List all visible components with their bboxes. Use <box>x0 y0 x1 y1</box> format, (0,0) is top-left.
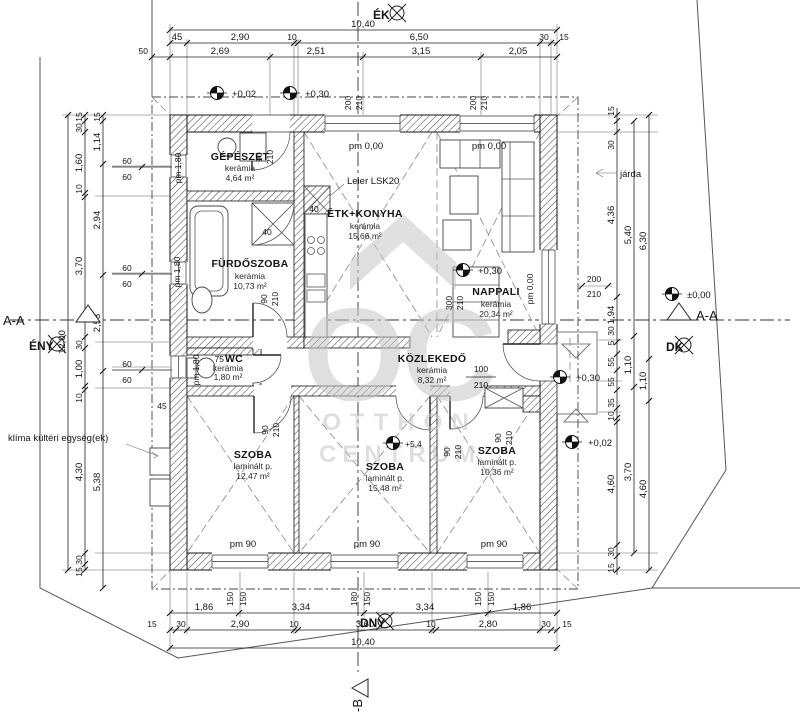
dim-label: 15 <box>74 567 84 577</box>
dim-label: 10,40 <box>351 637 375 648</box>
compass-ne: ÉK <box>373 7 390 22</box>
level-value: +0,30 <box>478 266 502 277</box>
dim-label: 2,05 <box>509 46 528 57</box>
room-area: 15,66 m² <box>348 231 382 241</box>
dim-label: 5,38 <box>92 473 103 492</box>
dim-label: 3,34 <box>292 602 311 613</box>
dim-label: 10 <box>289 619 299 629</box>
window-size-label: 200 <box>587 274 601 284</box>
dim-label: 30 <box>606 140 616 150</box>
room-area: 15,48 m² <box>368 483 402 493</box>
room-name: SZOBA <box>478 445 516 457</box>
dim-label: 3,34 <box>416 602 435 613</box>
dim-label: 2,94 <box>92 211 103 230</box>
dim-label: 6,50 <box>410 32 429 43</box>
room-area: 12,47 m² <box>236 471 270 481</box>
level-value: +0,30 <box>305 89 329 100</box>
section-label-a-right: A-A <box>696 308 718 323</box>
dim-label: 1,86 <box>195 602 214 613</box>
window-size-label: 150 <box>473 592 483 606</box>
chimney-label: Leier LSK20 <box>347 176 399 187</box>
window-size-label: 210 <box>587 289 601 299</box>
dim-label: 2,90 <box>231 619 250 630</box>
dim-label: 3,15 <box>412 46 431 57</box>
room-floor: kerámia <box>235 271 266 281</box>
fixture-size-label: 40 <box>262 227 272 237</box>
bathtub <box>190 206 228 296</box>
window-size-label: 60 <box>122 375 132 385</box>
window-size-label: 60 <box>122 172 132 182</box>
section-triangle-a-left <box>76 305 100 322</box>
section-label-b: -B <box>350 699 365 712</box>
window-size-label: 60 <box>122 263 132 273</box>
sofa-vertical <box>502 142 534 252</box>
armchair <box>443 220 471 250</box>
compass-icon <box>388 4 406 22</box>
dim-label: 10 <box>287 32 297 42</box>
pm-label: pm 90 <box>354 539 380 550</box>
level-marker-icon <box>662 288 682 301</box>
watermark-line1: OTTHON <box>322 409 477 436</box>
dim-label: 45 <box>172 32 183 43</box>
compass-se: DK <box>666 340 684 354</box>
dim-label: 15 <box>562 619 572 629</box>
dim-label: 5,40 <box>623 226 634 245</box>
dim-label: 4,60 <box>606 475 617 494</box>
klima-label: klíma kültéri egység(ek) <box>8 433 108 444</box>
dim-label: 2,69 <box>211 46 230 57</box>
pm-label: pm 1,80 <box>172 256 182 287</box>
dims-left: 15 30 1,60 10 3,70 30 1,00 10 4,30 30 15… <box>57 112 172 591</box>
room-name: GÉPÉSZET <box>211 150 270 163</box>
pm-label: pm 0,00 <box>349 141 383 152</box>
window-size-label: 300 <box>444 296 454 310</box>
dim-label: 4,30 <box>74 463 85 482</box>
door-size-label: 210 <box>271 423 281 437</box>
window-size-label: 210 <box>479 96 489 110</box>
level-value: +5,4 <box>405 439 422 449</box>
window-size-label: 200 <box>468 96 478 110</box>
window-size-label: 60 <box>122 359 132 369</box>
door-gap-wc <box>252 355 262 383</box>
section-label-a-left: A-A <box>3 313 25 328</box>
dim-label: 1,94 <box>606 306 617 325</box>
room-name: KÖZLEKEDŐ <box>398 352 467 365</box>
window-size-label: 210 <box>455 296 465 310</box>
window-size-label: 210 <box>354 96 364 110</box>
dim-label: 1,14 <box>92 133 103 152</box>
room-name: SZOBA <box>366 461 404 473</box>
window-size-label: 180 <box>349 592 359 606</box>
door-size-label: 90 <box>493 433 503 443</box>
dim-label: 15 <box>92 112 102 122</box>
wall-entry-top <box>508 330 540 344</box>
washbasin <box>192 287 212 313</box>
dim-label: 35 <box>606 398 616 408</box>
dim-label: 2,51 <box>307 46 326 57</box>
room-area: 10,36 m² <box>480 467 514 477</box>
door-size-label: 90 <box>259 294 269 304</box>
dim-label: 15 <box>606 563 616 573</box>
window-size-label: 150 <box>486 592 496 606</box>
pm-label: pm 0,00 <box>525 273 535 304</box>
door-size-label: 100 <box>474 364 488 374</box>
room-name: NAPPALI <box>472 286 519 298</box>
door-swing-entrance <box>503 344 540 381</box>
watermark: OC OTTHON CENTRUM <box>303 214 494 468</box>
door-size-label: 90 <box>260 425 270 435</box>
dim-label: 15 <box>147 619 157 629</box>
wall-gepeszet-furdo <box>187 191 294 201</box>
wall-east <box>540 115 557 570</box>
room-floor: kerámia <box>350 221 381 231</box>
room-area: 1,80 m² <box>214 372 243 382</box>
chimney-leader <box>330 184 344 196</box>
window-size-label: 150 <box>225 592 235 606</box>
level-marker-icon <box>280 87 300 100</box>
dim-label: 4,36 <box>606 206 617 225</box>
room-name: ÉTK+KONYHA <box>327 207 403 220</box>
dims-top: 10,40 45 2,90 10 6,50 30 15 50 2,69 2,51… <box>139 19 569 110</box>
dim-label: 5 <box>606 340 616 345</box>
room-area: 20,34 m² <box>479 309 513 319</box>
compass-sw: DNY <box>360 616 385 630</box>
dim-label: 10 <box>426 619 436 629</box>
wall-szoba1-szoba2 <box>294 396 299 553</box>
room-floor: laminált p. <box>366 473 405 483</box>
dim-label: 15 <box>559 32 569 42</box>
pm-label: pm 90 <box>230 539 256 550</box>
dim-label: 45 <box>157 401 167 411</box>
compass-nw: ÉNY <box>29 338 54 353</box>
room-area: 10,73 m² <box>233 281 267 291</box>
door-size-label: 90 <box>442 447 452 457</box>
pm-label: pm 0,00 <box>472 141 506 152</box>
room-floor: kerámia <box>481 299 512 309</box>
door-size-label: 210 <box>504 431 514 445</box>
door-size-label: 210 <box>453 445 463 459</box>
door-size-label: 210 <box>270 292 280 306</box>
door-gap-furdo <box>253 336 287 349</box>
room-name: FÜRDŐSZOBA <box>211 257 288 270</box>
dim-label: 10 <box>74 184 84 194</box>
dim-label: 3,70 <box>74 257 85 276</box>
dim-label: 30 <box>606 547 616 557</box>
door-gap-gepeszet <box>252 114 290 133</box>
dim-label: 3,70 <box>623 463 634 482</box>
dim-label: 1,10 <box>623 356 634 375</box>
level-marker-icon <box>562 436 582 449</box>
room-floor: laminált p. <box>478 457 517 467</box>
jarda-arrow <box>596 169 617 177</box>
window-size-label: 150 <box>238 592 248 606</box>
pm-label: pm 1,80 <box>173 152 183 183</box>
level-value: +0,02 <box>588 438 612 449</box>
room-floor: kerámia <box>225 163 256 173</box>
pm-label: pm 1,80 <box>191 354 201 385</box>
dim-label: 15 <box>74 112 84 122</box>
ac-outdoor-unit-2 <box>150 479 170 506</box>
room-area: 8,32 m² <box>418 375 447 385</box>
level-marker-icon <box>207 87 227 100</box>
level-value: +0,30 <box>576 373 600 384</box>
dim-label: 2,80 <box>479 619 498 630</box>
room-name: SZOBA <box>234 449 272 461</box>
room-floor: laminált p. <box>234 461 273 471</box>
dim-label: 30 <box>74 340 84 350</box>
dim-label: 30 <box>606 326 616 336</box>
room-floor: kerámia <box>417 365 448 375</box>
jarda-label: járda <box>619 169 642 180</box>
dim-label: 1,86 <box>513 602 532 613</box>
porch-step-bottom <box>564 409 588 422</box>
door-size-label: 210 <box>474 380 488 390</box>
dim-label: 50 <box>139 46 149 56</box>
dim-label: 10 <box>74 393 84 403</box>
fixture-size-label: 40 <box>309 204 319 214</box>
level-value: +0,02 <box>232 89 256 100</box>
coffee-table <box>450 176 478 214</box>
dim-label: 10 <box>606 411 616 421</box>
room-area: 4,64 m² <box>226 173 255 183</box>
dim-label: 55 <box>606 357 616 367</box>
dim-label: 30 <box>74 123 84 133</box>
dim-label: 55 <box>606 377 616 387</box>
dim-label: 1,10 <box>638 372 649 391</box>
dim-label: 30 <box>539 32 549 42</box>
level-value: ±0,00 <box>687 290 711 301</box>
window-size-label: 150 <box>362 592 372 606</box>
dim-label: 1,60 <box>74 154 85 173</box>
section-triangle-b <box>352 679 368 697</box>
pm-label: pm 90 <box>481 539 507 550</box>
window-size-label: 60 <box>122 156 132 166</box>
section-triangle-a-right <box>667 303 691 320</box>
door-gap-szoba1 <box>254 385 291 397</box>
window-size-label: 60 <box>122 279 132 289</box>
floor-plan-page: OC OTTHON CENTRUM 10,40 45 2,90 10 6,50 … <box>0 0 800 714</box>
ac-outdoor-unit-1 <box>150 448 170 475</box>
dim-label: 30 <box>541 619 551 629</box>
window-size-label: 200 <box>343 96 353 110</box>
dim-label: 30 <box>74 555 84 565</box>
floor-plan-svg: OC OTTHON CENTRUM 10,40 45 2,90 10 6,50 … <box>0 0 800 714</box>
porch-step-top <box>562 344 590 358</box>
dim-label: 4,60 <box>638 480 649 499</box>
dim-label: 10,40 <box>351 19 375 30</box>
dim-label: 2,90 <box>231 32 250 43</box>
dim-label: 15 <box>606 106 616 116</box>
wall-entry-bottom <box>523 396 540 412</box>
dim-label: 6,30 <box>638 232 649 251</box>
dims-right: 15 30 4,36 1,94 30 5 55 55 35 10 4,60 30… <box>579 106 652 575</box>
dim-label: 30 <box>176 619 186 629</box>
dim-label: 1,00 <box>74 360 85 379</box>
